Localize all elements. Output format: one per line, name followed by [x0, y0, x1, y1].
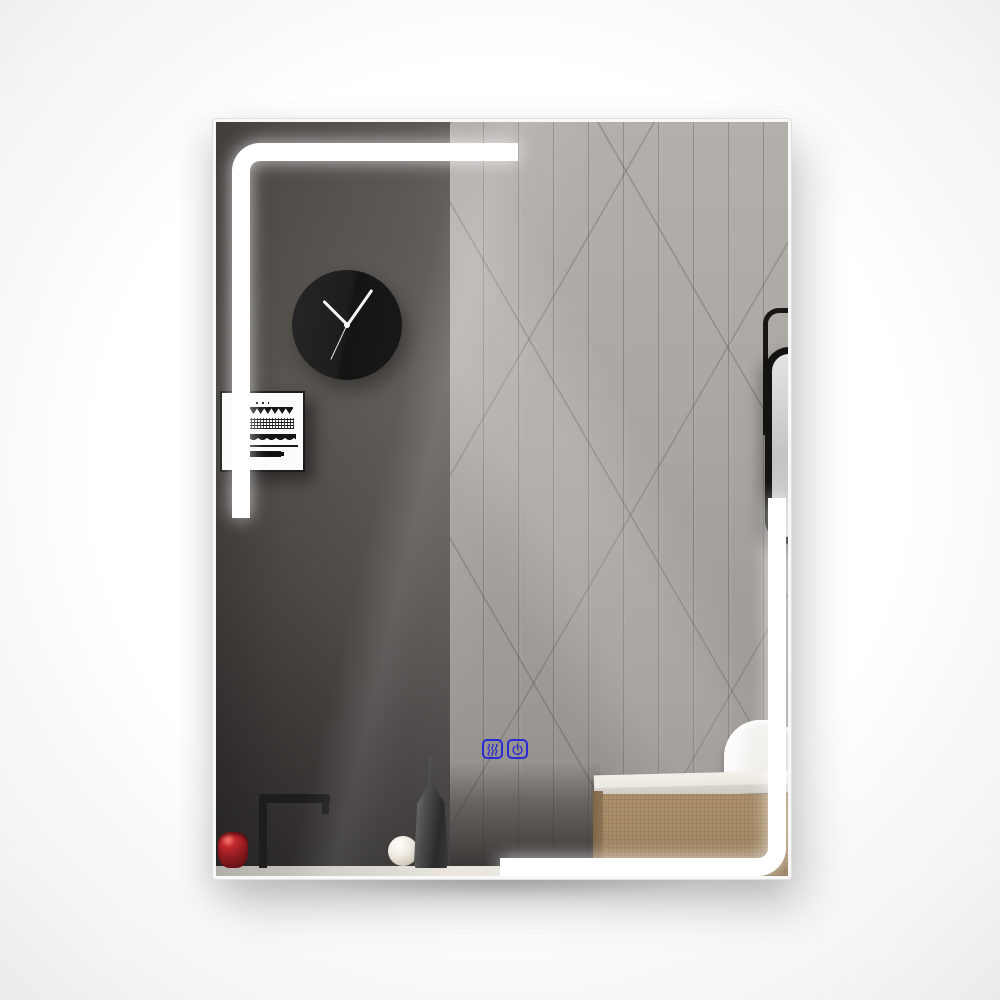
touch-controls — [482, 739, 528, 759]
faucet-spout-arm — [259, 794, 330, 803]
led-mirror — [213, 119, 791, 879]
faucet — [259, 794, 267, 868]
mirror-glass-reflection — [216, 122, 788, 876]
defog-button[interactable] — [482, 739, 503, 759]
faucet-spout-tip — [322, 801, 329, 814]
power-icon — [511, 743, 524, 756]
product-photo-background — [0, 0, 1000, 1000]
power-button[interactable] — [507, 739, 528, 759]
led-strip-top-left — [232, 143, 518, 518]
red-cup — [218, 832, 248, 868]
decor-sphere — [388, 836, 418, 866]
led-strip-bottom-right — [500, 498, 786, 876]
defog-waves-icon — [486, 743, 499, 756]
